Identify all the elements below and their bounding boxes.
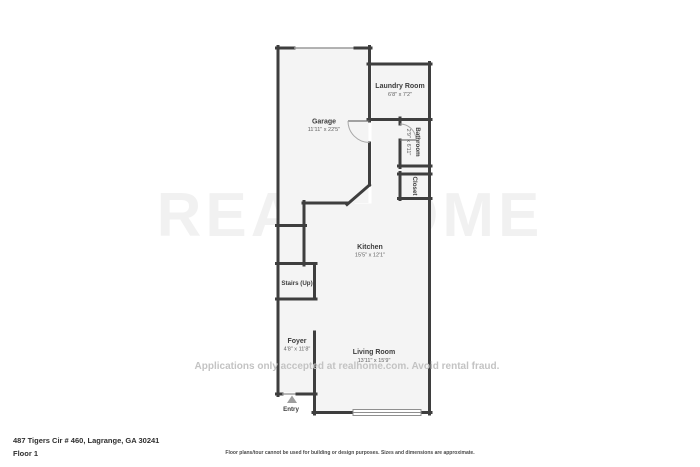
room-dims-kitchen: 15'5" x 12'1" bbox=[355, 253, 385, 259]
room-dims-laundry: 6'8" x 7'2" bbox=[388, 92, 412, 98]
entry-arrow-icon bbox=[287, 396, 297, 404]
floor-plan: REALHOME bbox=[0, 0, 700, 467]
room-dims-garage: 11'11" x 22'5" bbox=[308, 127, 340, 133]
room-label-foyer: Foyer bbox=[287, 338, 306, 345]
room-label-kitchen: Kitchen bbox=[357, 244, 383, 251]
address-label: 487 Tigers Cir # 460, Lagrange, GA 30241 bbox=[13, 436, 159, 445]
living-room-window bbox=[353, 410, 421, 416]
room-dims-foyer: 4'8" x 11'8" bbox=[284, 347, 311, 353]
room-label-entry: Entry bbox=[283, 406, 299, 413]
entry-marker: Entry bbox=[283, 396, 299, 414]
room-label-garage: Garage bbox=[312, 119, 336, 126]
watermark-text: Applications only accepted at realhome.c… bbox=[195, 361, 500, 372]
room-dims-bathroom: 2'9" x 6'11" bbox=[405, 129, 411, 156]
room-label-bathroom: Bathroom bbox=[414, 127, 421, 157]
room-fills bbox=[279, 49, 430, 413]
room-label-closet: Closet bbox=[411, 177, 418, 196]
room-label-stairs: Stairs (Up) bbox=[281, 280, 312, 287]
disclaimer-text: Floor plans/tour cannot be used for buil… bbox=[0, 450, 700, 456]
floor-plan-page: REALHOME bbox=[0, 0, 700, 467]
room-label-laundry: Laundry Room bbox=[375, 83, 424, 90]
room-label-living: Living Room bbox=[353, 349, 395, 356]
